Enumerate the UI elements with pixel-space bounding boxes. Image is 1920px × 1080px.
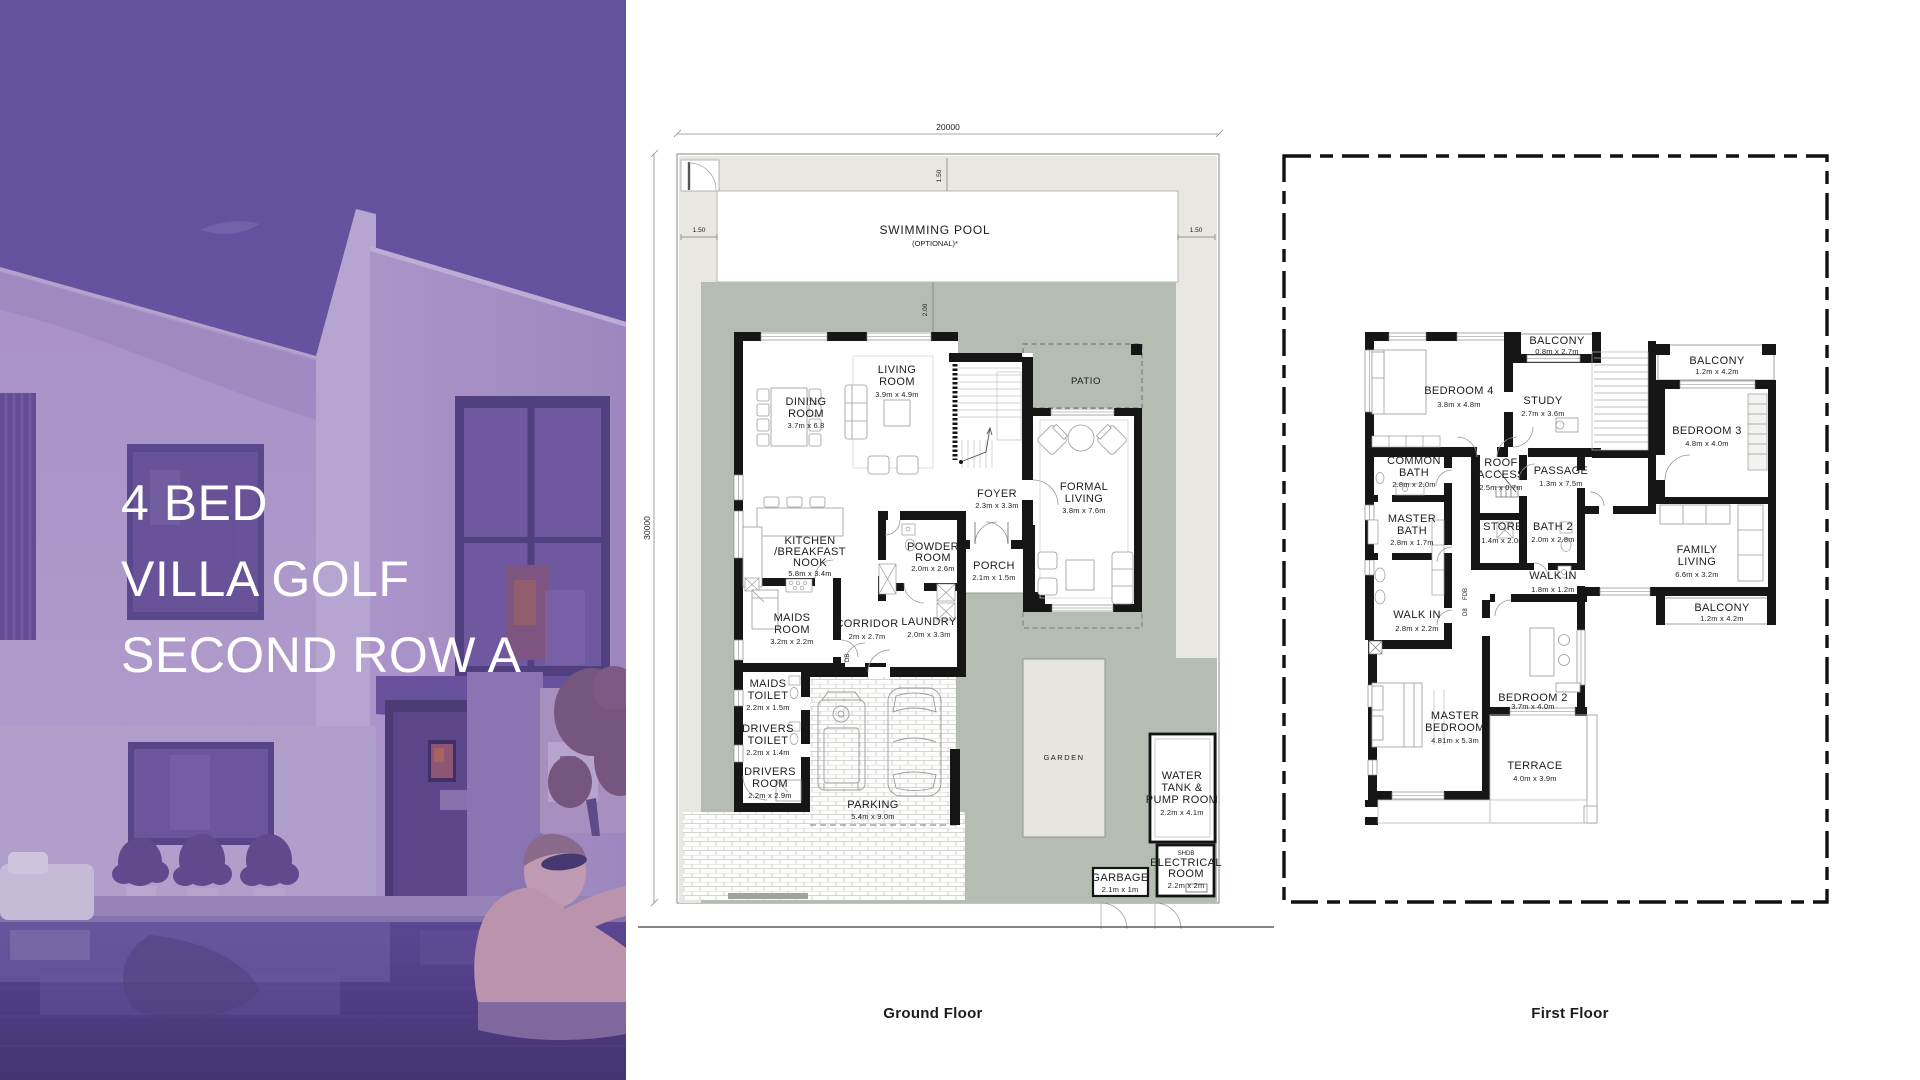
svg-text:BALCONY: BALCONY [1694,602,1750,614]
svg-text:3.8m x 4.8m: 3.8m x 4.8m [1437,400,1480,409]
svg-text:COMMON: COMMON [1387,455,1441,467]
svg-text:LIVING: LIVING [1678,556,1716,568]
svg-text:1.2m x 4.2m: 1.2m x 4.2m [1695,367,1738,376]
svg-text:2.8m x 2.0m: 2.8m x 2.0m [1392,480,1435,489]
svg-text:STORE: STORE [1483,521,1523,533]
svg-text:First Floor: First Floor [1531,1005,1608,1022]
svg-text:FDB: FDB [1463,588,1469,600]
svg-text:1.4m x 2.0m: 1.4m x 2.0m [1481,536,1524,545]
svg-text:2.8m x 2.2m: 2.8m x 2.2m [1395,624,1438,633]
svg-text:WALK IN: WALK IN [1393,609,1441,621]
svg-text:MASTER: MASTER [1431,710,1479,722]
svg-text:FAMILY: FAMILY [1677,544,1718,556]
svg-text:1.3m x 7.5m: 1.3m x 7.5m [1539,479,1582,488]
svg-text:1.8m x 1.2m: 1.8m x 1.2m [1531,585,1574,594]
svg-text:BALCONY: BALCONY [1529,335,1585,347]
svg-text:BALCONY: BALCONY [1689,355,1745,367]
svg-text:4.81m x 5.3m: 4.81m x 5.3m [1431,736,1479,745]
svg-text:0.8m x 2.7m: 0.8m x 2.7m [1535,347,1578,356]
svg-text:3.7m x 4.0m: 3.7m x 4.0m [1511,702,1554,711]
svg-text:MASTER: MASTER [1388,513,1436,525]
svg-text:2.5m x 0.7m: 2.5m x 0.7m [1479,483,1522,492]
svg-text:BATH: BATH [1397,525,1427,537]
svg-text:BEDROOM: BEDROOM [1425,722,1485,734]
svg-text:4.8m x 4.0m: 4.8m x 4.0m [1685,439,1728,448]
svg-text:BATH: BATH [1399,467,1429,479]
svg-text:STUDY: STUDY [1523,395,1563,407]
svg-text:BEDROOM 3: BEDROOM 3 [1672,425,1742,437]
svg-text:WALK IN: WALK IN [1529,570,1577,582]
svg-text:6.6m x 3.2m: 6.6m x 3.2m [1675,570,1718,579]
svg-text:ACCESS: ACCESS [1477,469,1525,481]
svg-text:TERRACE: TERRACE [1507,760,1562,772]
svg-text:2.0m x 2.8m: 2.0m x 2.8m [1531,535,1574,544]
svg-text:4.0m x 3.9m: 4.0m x 3.9m [1513,774,1556,783]
svg-text:BATH 2: BATH 2 [1533,521,1573,533]
svg-text:2.8m x 1.7m: 2.8m x 1.7m [1390,538,1433,547]
svg-text:BEDROOM 4: BEDROOM 4 [1424,385,1494,397]
svg-text:D8: D8 [1463,608,1469,616]
svg-text:ROOF: ROOF [1484,457,1517,469]
svg-text:PASSAGE: PASSAGE [1534,465,1589,477]
svg-text:2.7m x 3.6m: 2.7m x 3.6m [1521,409,1564,418]
svg-text:1.2m x 4.2m: 1.2m x 4.2m [1700,614,1743,623]
